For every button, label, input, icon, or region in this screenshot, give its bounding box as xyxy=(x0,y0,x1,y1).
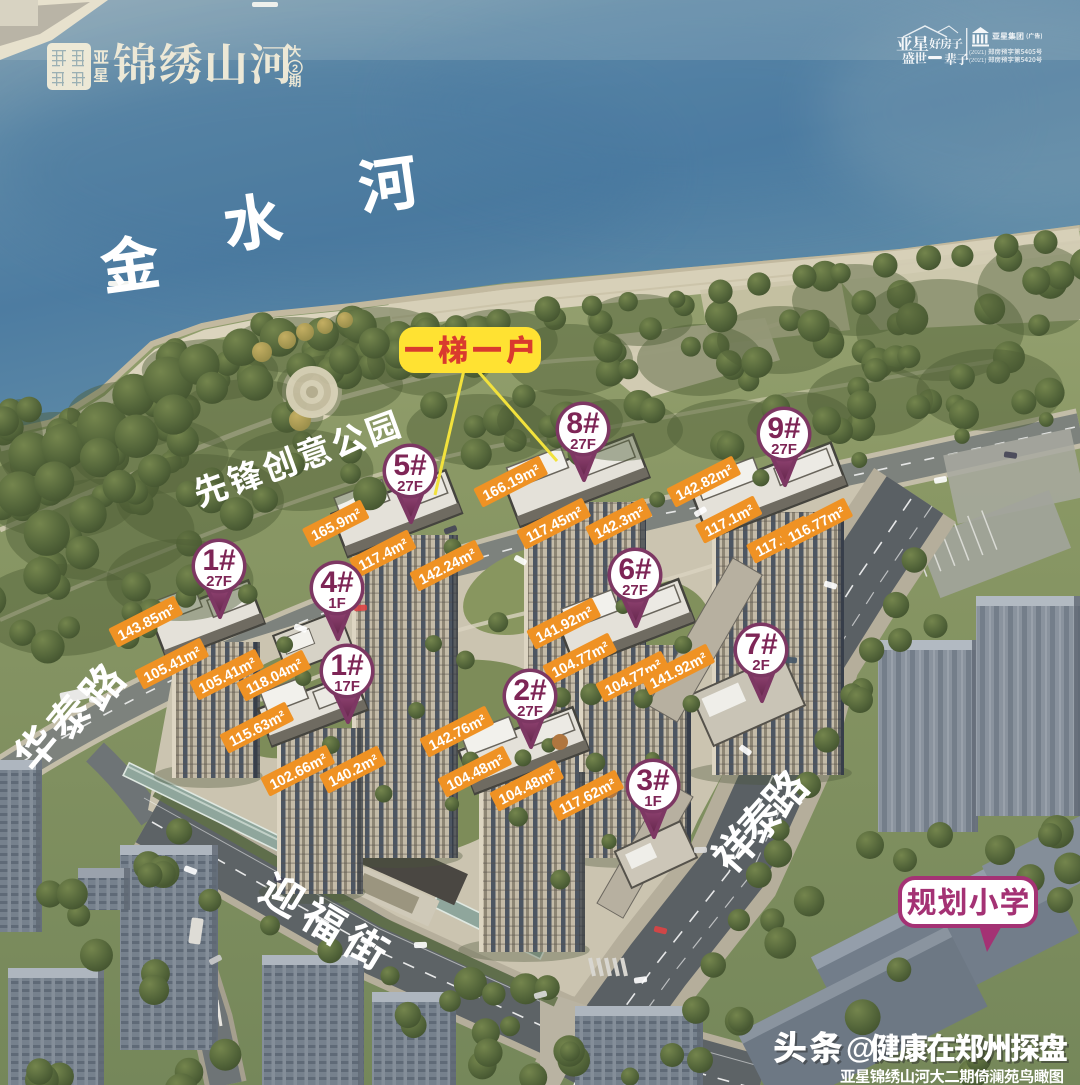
svg-text:27F: 27F xyxy=(517,703,543,720)
svg-text:27F: 27F xyxy=(771,441,797,458)
svg-text:27F: 27F xyxy=(206,573,232,590)
svg-text:2F: 2F xyxy=(752,657,770,674)
svg-text:(2021): (2021) xyxy=(969,50,986,56)
svg-text:27F: 27F xyxy=(622,582,648,599)
svg-text:27F: 27F xyxy=(397,478,423,495)
svg-text:17F: 17F xyxy=(334,678,360,695)
svg-text:(2021): (2021) xyxy=(969,58,986,64)
svg-text:2: 2 xyxy=(292,63,298,75)
svg-text:1F: 1F xyxy=(644,793,662,810)
svg-text:@: @ xyxy=(846,1032,875,1065)
svg-text:27F: 27F xyxy=(570,436,596,453)
svg-text:1F: 1F xyxy=(328,595,346,612)
